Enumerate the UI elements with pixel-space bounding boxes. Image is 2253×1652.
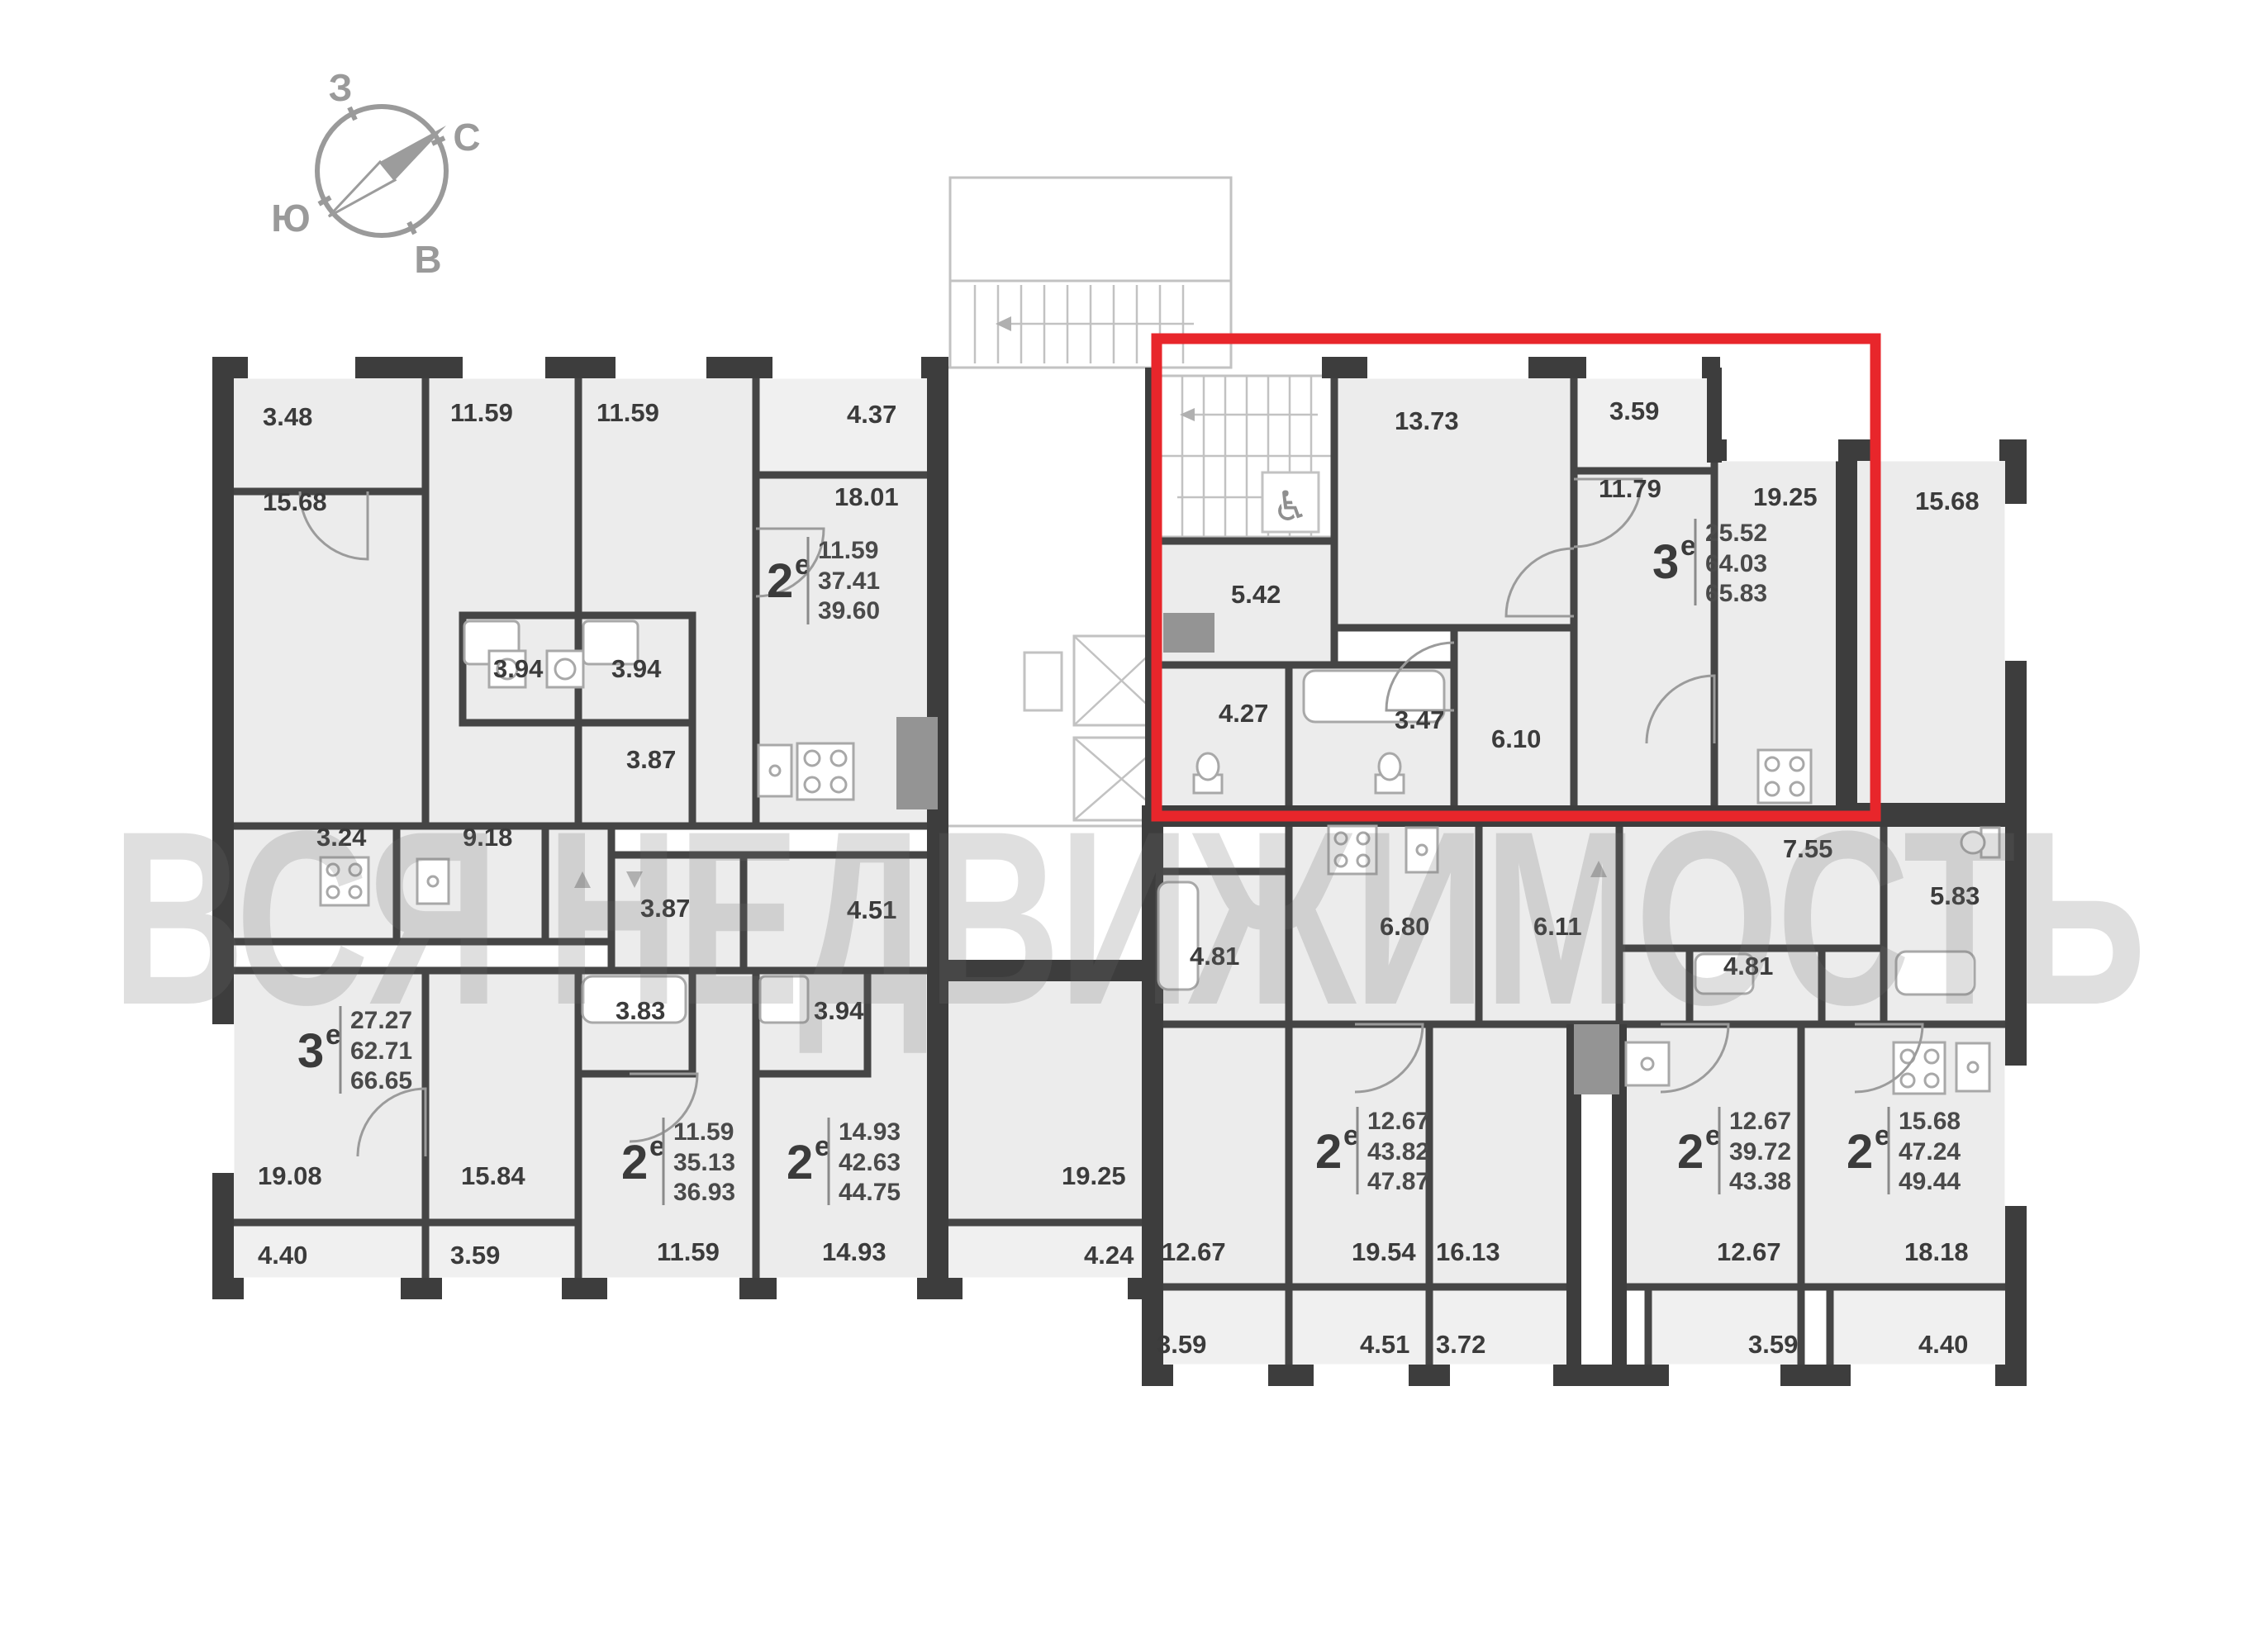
svg-text:2: 2: [1847, 1125, 1873, 1179]
svg-text:47.24: 47.24: [1899, 1138, 1961, 1165]
svg-text:3: 3: [1652, 535, 1679, 589]
compass-rose: З С Ю В: [271, 66, 480, 281]
svg-text:39.72: 39.72: [1729, 1138, 1791, 1165]
wheelchair-access-icon: ♿: [1262, 472, 1319, 532]
compass-east-label: В: [414, 238, 441, 281]
svg-text:2: 2: [767, 554, 793, 608]
svg-text:12.67: 12.67: [1367, 1108, 1429, 1135]
room-area-label: 11.59: [450, 398, 513, 427]
svg-text:14.93: 14.93: [839, 1118, 901, 1146]
room-area-label: 16.13: [1436, 1237, 1500, 1266]
room-area-label: 15.68: [263, 487, 327, 516]
floor-plan-page: З С Ю В: [0, 0, 2253, 1652]
svg-text:25.52: 25.52: [1705, 520, 1767, 547]
compass-west-label: З: [329, 66, 353, 109]
room-area-label: 3.59: [1609, 396, 1659, 425]
svg-text:49.44: 49.44: [1899, 1168, 1961, 1195]
svg-text:35.13: 35.13: [673, 1149, 735, 1176]
room-area-label: 4.40: [1918, 1330, 1968, 1359]
room-area-label: 6.10: [1491, 724, 1541, 753]
svg-text:36.93: 36.93: [673, 1179, 735, 1206]
room-loggia: [223, 368, 425, 491]
room-area-label: 3.59: [1157, 1330, 1206, 1359]
room-area-label: 14.93: [822, 1237, 886, 1266]
svg-text:12.67: 12.67: [1729, 1108, 1791, 1135]
room-area-label: 3.72: [1436, 1330, 1485, 1359]
floor-plan-canvas: З С Ю В: [0, 0, 2253, 1652]
room-area-label: 19.25: [1062, 1161, 1126, 1190]
room-area-label: 4.27: [1219, 699, 1268, 728]
room-area-label: 3.94: [611, 654, 662, 683]
room-area-label: 11.59: [597, 398, 659, 427]
compass-needle-light: [329, 162, 395, 216]
svg-text:2: 2: [1677, 1125, 1704, 1179]
room-area-label: 12.67: [1162, 1237, 1226, 1266]
room-area-label: 18.18: [1904, 1237, 1969, 1266]
svg-text:47.87: 47.87: [1367, 1168, 1429, 1195]
svg-text:2: 2: [787, 1136, 813, 1189]
svg-text:39.60: 39.60: [818, 597, 880, 624]
svg-text:♿: ♿: [1272, 483, 1309, 529]
room-area-label: 3.48: [263, 402, 312, 431]
room-area-label: 11.79: [1599, 474, 1661, 503]
room-area-label: 4.24: [1084, 1241, 1134, 1270]
room-area-label: 19.54: [1352, 1237, 1416, 1266]
svg-text:43.82: 43.82: [1367, 1138, 1429, 1165]
svg-text:43.38: 43.38: [1729, 1168, 1791, 1195]
room-area-label: 3.94: [493, 654, 544, 683]
svg-text:11.59: 11.59: [818, 537, 878, 564]
compass-needle-dark: [380, 126, 446, 180]
svg-text:2: 2: [621, 1136, 648, 1189]
room-area-label: 4.40: [258, 1241, 307, 1270]
room: [425, 368, 578, 826]
svg-text:66.65: 66.65: [350, 1067, 412, 1094]
room-area-label: 12.67: [1717, 1237, 1781, 1266]
compass-north-label: С: [453, 116, 480, 159]
room-area-label: 3.87: [626, 745, 676, 774]
room-area-label: 3.59: [1748, 1330, 1798, 1359]
room-area-label: 11.59: [657, 1237, 720, 1266]
room-area-label: 4.37: [847, 400, 896, 429]
room-area-label: 15.84: [461, 1161, 525, 1190]
room-area-label: 4.51: [1360, 1330, 1409, 1359]
svg-text:15.68: 15.68: [1899, 1108, 1961, 1135]
svg-text:е: е: [1680, 530, 1696, 562]
compass-south-label: Ю: [271, 197, 310, 240]
room-area-label: 18.01: [834, 482, 899, 511]
room-area-label: 15.68: [1915, 487, 1980, 515]
svg-text:64.03: 64.03: [1705, 550, 1767, 577]
svg-text:44.75: 44.75: [839, 1179, 901, 1206]
room-area-label: 19.25: [1753, 482, 1818, 511]
svg-text:2: 2: [1315, 1125, 1342, 1179]
room-area-label: 5.42: [1231, 580, 1281, 609]
room-area-label: 19.08: [258, 1161, 322, 1190]
room-area-label: 3.59: [450, 1241, 500, 1270]
svg-text:65.83: 65.83: [1705, 580, 1767, 607]
svg-text:42.63: 42.63: [839, 1149, 901, 1176]
room-area-label: 13.73: [1395, 406, 1459, 435]
room-area-label: 3.47: [1395, 705, 1444, 734]
svg-text:11.59: 11.59: [673, 1118, 734, 1146]
svg-text:37.41: 37.41: [818, 567, 880, 595]
room: [223, 491, 425, 826]
room: [1574, 471, 1714, 816]
